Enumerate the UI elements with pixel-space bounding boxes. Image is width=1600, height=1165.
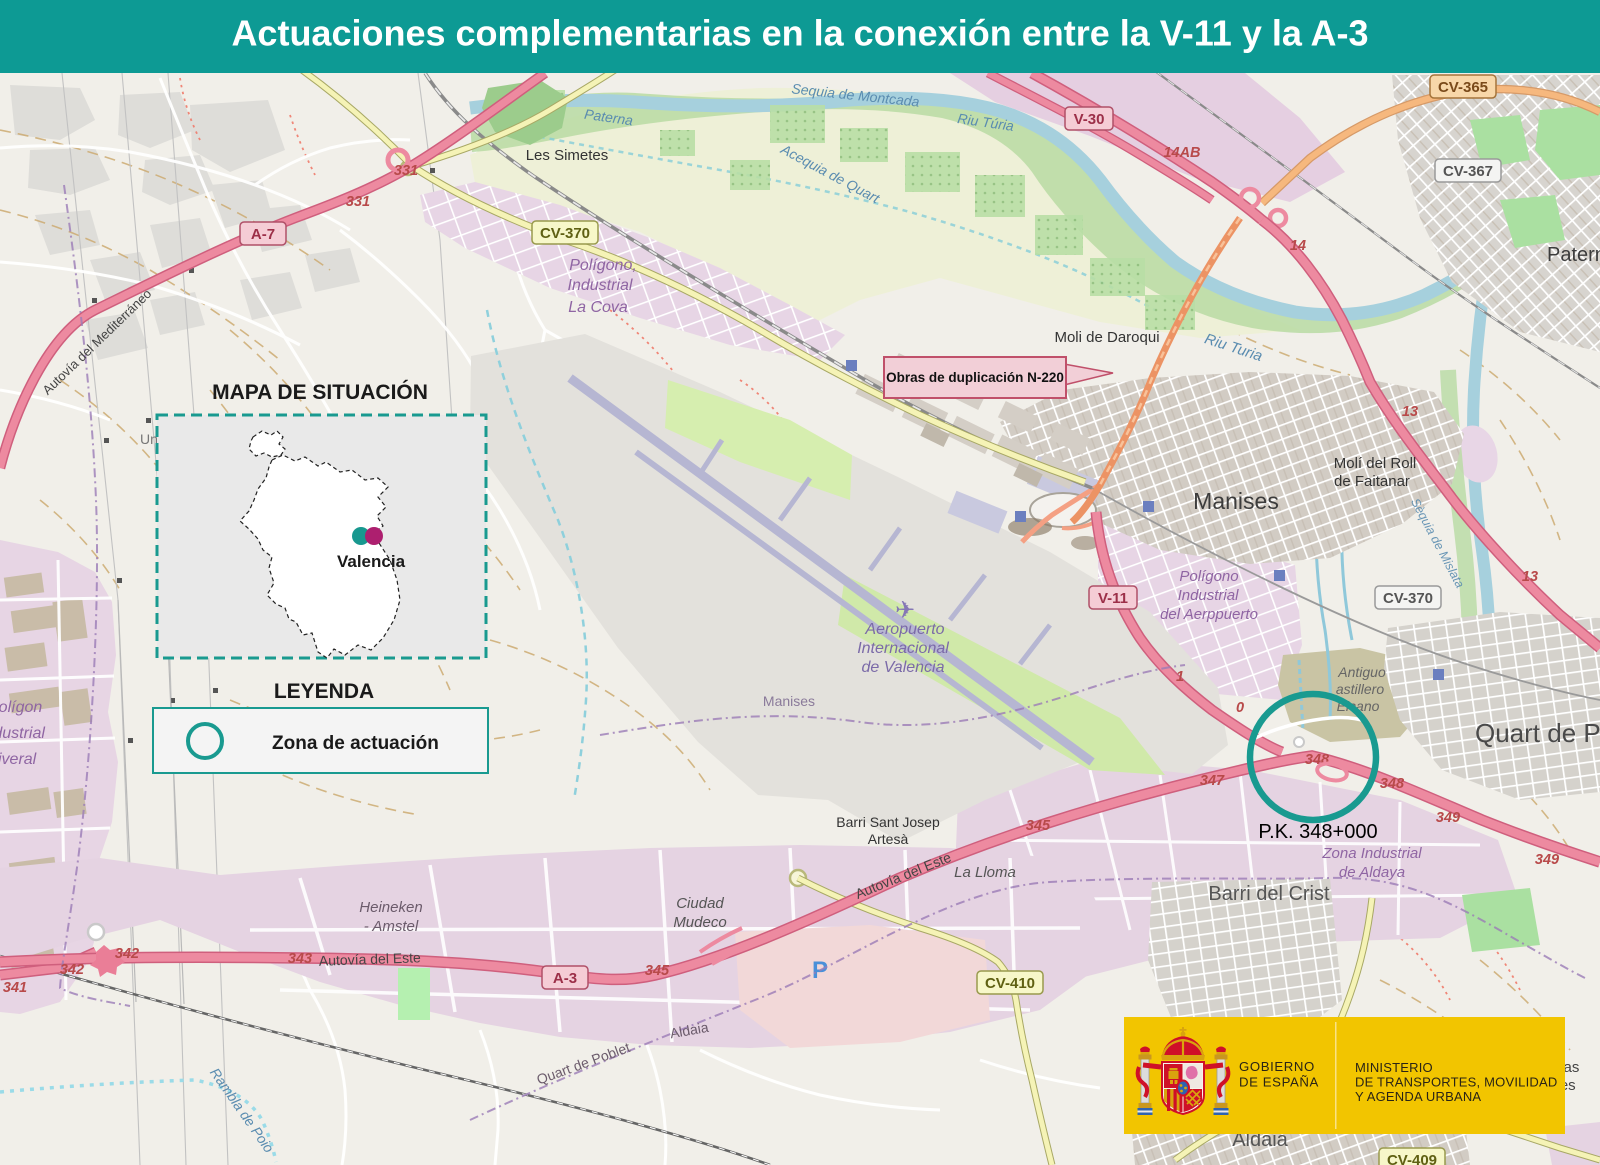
svg-text:P.K. 348+000: P.K. 348+000 [1258, 821, 1377, 843]
svg-text:LEYENDA: LEYENDA [274, 680, 374, 703]
svg-text:Antiguo: Antiguo [1337, 664, 1386, 680]
svg-text:V-30: V-30 [1074, 111, 1105, 128]
svg-text:Molí del Roll: Molí del Roll [1334, 455, 1417, 472]
svg-text:Polígon: Polígon [0, 699, 42, 716]
svg-text:La Cova: La Cova [568, 299, 628, 316]
svg-text:1: 1 [1176, 669, 1184, 685]
svg-text:del Aerppuerto: del Aerppuerto [1160, 606, 1258, 623]
svg-text:astillero: astillero [1336, 681, 1384, 697]
svg-text:Industrial: Industrial [1178, 587, 1240, 604]
svg-text:347: 347 [1200, 773, 1225, 789]
svg-text:342: 342 [115, 946, 139, 962]
svg-text:Mudeco: Mudeco [673, 914, 726, 931]
svg-text:341: 341 [3, 980, 27, 996]
svg-text:13: 13 [1402, 404, 1418, 420]
svg-text:CV-410: CV-410 [985, 975, 1035, 992]
svg-text:Zona Industrial: Zona Industrial [1321, 845, 1422, 862]
svg-text:Artesà: Artesà [868, 831, 909, 847]
svg-text:Y AGENDA URBANA: Y AGENDA URBANA [1355, 1089, 1481, 1104]
svg-text:MAPA DE SITUACIÓN: MAPA DE SITUACIÓN [212, 380, 428, 404]
svg-text:- Amstel: - Amstel [364, 918, 419, 935]
svg-text:Manises: Manises [763, 693, 815, 709]
svg-text:Manises: Manises [1193, 488, 1279, 514]
svg-text:Polígono: Polígono [1179, 568, 1238, 585]
svg-text:0: 0 [1236, 700, 1244, 716]
svg-text:Industrial: Industrial [0, 725, 45, 742]
svg-text:Barri Sant Josep: Barri Sant Josep [836, 814, 940, 830]
svg-text:Zona de actuación: Zona de actuación [272, 733, 439, 754]
svg-text:343: 343 [288, 951, 312, 967]
svg-text:14: 14 [1290, 238, 1306, 254]
svg-text:Les Simetes: Les Simetes [526, 147, 609, 164]
svg-text:Valencia: Valencia [337, 552, 406, 571]
svg-text:DE ESPAÑA: DE ESPAÑA [1239, 1075, 1319, 1090]
svg-text:Internacional: Internacional [857, 640, 949, 657]
svg-text:331: 331 [346, 194, 370, 210]
svg-text:Obras de duplicación N-220: Obras de duplicación N-220 [886, 370, 1064, 385]
svg-text:CV-370: CV-370 [540, 225, 590, 242]
svg-text:Polígono,: Polígono, [569, 257, 637, 274]
svg-text:de Aldaya: de Aldaya [1339, 864, 1405, 881]
svg-text:✈: ✈ [895, 597, 915, 624]
svg-text:348: 348 [1380, 776, 1405, 792]
svg-text:Oliveral: Oliveral [0, 751, 37, 768]
svg-text:14AB: 14AB [1163, 145, 1200, 161]
svg-text:Barri del Crist: Barri del Crist [1208, 883, 1330, 905]
svg-text:Heineken: Heineken [359, 899, 422, 916]
svg-text:345: 345 [645, 963, 670, 979]
svg-text:349: 349 [1436, 810, 1460, 826]
svg-text:CV-365: CV-365 [1438, 79, 1488, 96]
svg-text:Quart de Pobl: Quart de Pobl [1475, 718, 1600, 748]
svg-text:CV-409: CV-409 [1387, 1152, 1437, 1165]
svg-text:de Faitanar: de Faitanar [1334, 473, 1410, 490]
svg-text:Un: Un [140, 431, 158, 447]
svg-text:349: 349 [1535, 852, 1559, 868]
svg-text:GOBIERNO: GOBIERNO [1239, 1059, 1315, 1074]
svg-text:CV-367: CV-367 [1443, 163, 1493, 180]
svg-text:345: 345 [1026, 818, 1051, 834]
svg-text:Actuaciones complementarias en: Actuaciones complementarias en la conexi… [231, 13, 1368, 54]
svg-text:Ciudad: Ciudad [676, 895, 724, 912]
svg-text:331: 331 [394, 163, 418, 179]
svg-text:Moli de Daroqui: Moli de Daroqui [1054, 329, 1159, 346]
svg-text:Industrial: Industrial [568, 277, 633, 294]
svg-text:CV-370: CV-370 [1383, 590, 1433, 607]
svg-text:MINISTERIO: MINISTERIO [1355, 1060, 1433, 1075]
svg-text:DE TRANSPORTES, MOVILIDAD: DE TRANSPORTES, MOVILIDAD [1355, 1075, 1557, 1090]
svg-text:342: 342 [60, 962, 84, 978]
svg-text:La Lloma: La Lloma [954, 864, 1016, 881]
svg-text:Paterna: Paterna [1547, 244, 1600, 266]
svg-text:V-11: V-11 [1098, 590, 1128, 607]
svg-text:A-7: A-7 [251, 226, 275, 243]
svg-text:A-3: A-3 [553, 970, 577, 987]
svg-text:de Valencia: de Valencia [861, 659, 944, 676]
svg-text:13: 13 [1522, 569, 1538, 585]
